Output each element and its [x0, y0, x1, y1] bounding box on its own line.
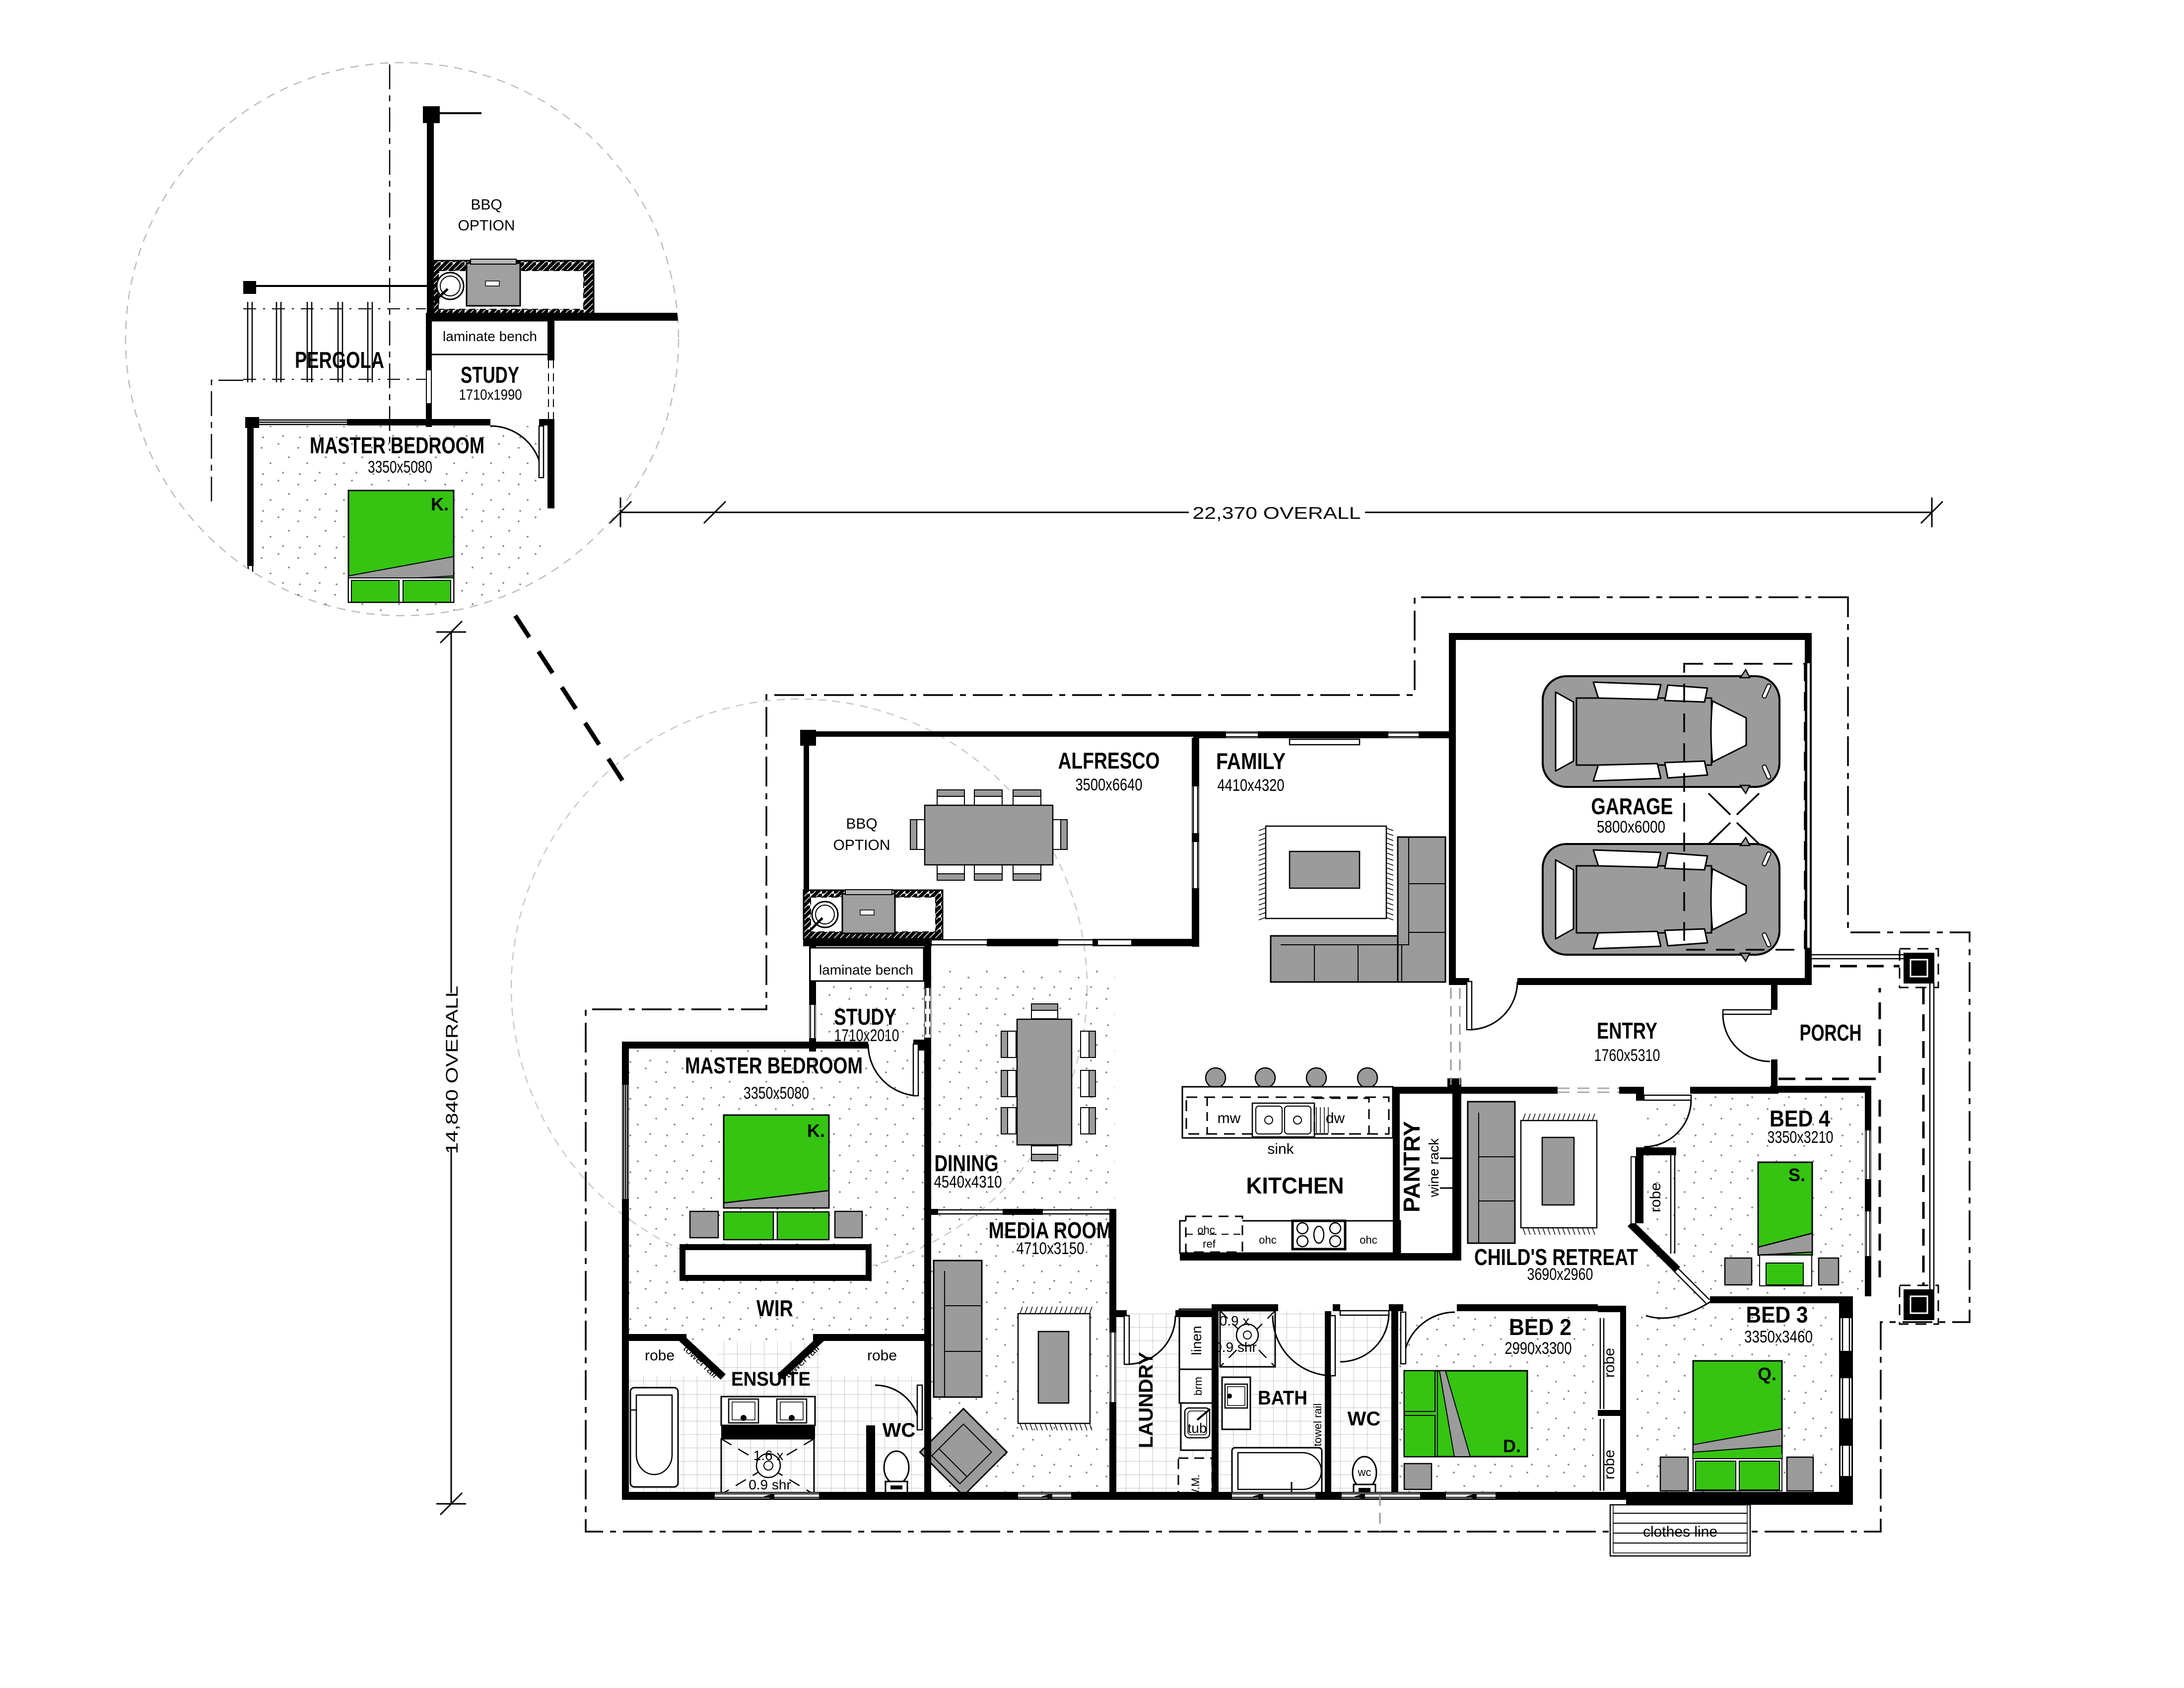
- svg-text:D.: D.: [1503, 1436, 1521, 1456]
- svg-text:K.: K.: [431, 494, 449, 514]
- svg-text:robe: robe: [1601, 1348, 1618, 1378]
- svg-text:ENTRY: ENTRY: [1597, 1018, 1657, 1044]
- svg-text:brm: brm: [1192, 1377, 1204, 1396]
- svg-text:0.9 shr: 0.9 shr: [1214, 1339, 1257, 1355]
- svg-text:wine rack: wine rack: [1426, 1138, 1441, 1197]
- svg-text:robe: robe: [645, 1347, 675, 1364]
- svg-text:FAMILY: FAMILY: [1216, 748, 1286, 774]
- svg-text:2990x3300: 2990x3300: [1505, 1339, 1572, 1358]
- svg-text:BED 2: BED 2: [1509, 1314, 1571, 1340]
- svg-text:robe: robe: [1647, 1183, 1664, 1212]
- svg-text:ohc: ohc: [1259, 1234, 1276, 1246]
- svg-text:wc: wc: [1358, 1466, 1371, 1478]
- svg-text:PORCH: PORCH: [1800, 1020, 1862, 1046]
- svg-text:14,840 OVERALL: 14,840 OVERALL: [443, 986, 462, 1154]
- svg-text:K.: K.: [807, 1121, 825, 1141]
- svg-text:OPTION: OPTION: [833, 837, 890, 853]
- svg-text:4410x4320: 4410x4320: [1218, 776, 1285, 795]
- svg-text:LAUNDRY: LAUNDRY: [1135, 1352, 1157, 1448]
- svg-text:PANTRY: PANTRY: [1399, 1121, 1425, 1212]
- svg-text:0.9 shr: 0.9 shr: [749, 1477, 791, 1492]
- svg-text:1.6 x: 1.6 x: [753, 1448, 784, 1463]
- svg-text:3350x5080: 3350x5080: [368, 458, 432, 477]
- svg-text:BED 3: BED 3: [1746, 1302, 1808, 1328]
- svg-text:BBQ: BBQ: [471, 197, 502, 213]
- svg-text:BATH: BATH: [1258, 1387, 1307, 1409]
- svg-text:4710x3150: 4710x3150: [1017, 1239, 1085, 1258]
- svg-text:OPTION: OPTION: [458, 217, 515, 234]
- svg-text:5800x6000: 5800x6000: [1597, 818, 1665, 837]
- svg-text:1710x2010: 1710x2010: [834, 1026, 899, 1045]
- svg-text:WC: WC: [1348, 1408, 1381, 1430]
- svg-text:22,370 OVERALL: 22,370 OVERALL: [1193, 504, 1361, 523]
- svg-text:ref: ref: [1203, 1238, 1216, 1250]
- svg-text:WIR: WIR: [756, 1295, 793, 1321]
- svg-text:1710x1990: 1710x1990: [459, 387, 522, 403]
- svg-text:3350x3460: 3350x3460: [1744, 1328, 1813, 1346]
- svg-text:towel rail: towel rail: [1311, 1404, 1324, 1447]
- svg-text:dw: dw: [1326, 1110, 1345, 1126]
- svg-text:clothes line: clothes line: [1643, 1524, 1717, 1540]
- svg-text:4540x4310: 4540x4310: [934, 1173, 1002, 1192]
- svg-text:ohc: ohc: [1197, 1224, 1215, 1236]
- svg-text:3500x6640: 3500x6640: [1076, 775, 1143, 794]
- svg-text:1760x5310: 1760x5310: [1594, 1046, 1660, 1065]
- svg-text:laminate bench: laminate bench: [443, 329, 537, 344]
- svg-text:robe: robe: [1601, 1450, 1618, 1479]
- svg-text:WC: WC: [883, 1419, 916, 1441]
- svg-text:0.9 x: 0.9 x: [1220, 1313, 1250, 1329]
- svg-text:robe: robe: [867, 1347, 897, 1364]
- svg-text:sink: sink: [1267, 1141, 1294, 1157]
- svg-text:ALFRESCO: ALFRESCO: [1058, 748, 1160, 774]
- svg-text:3350x5080: 3350x5080: [744, 1084, 809, 1103]
- svg-text:laminate bench: laminate bench: [819, 962, 913, 978]
- svg-text:S.: S.: [1788, 1165, 1805, 1185]
- svg-text:MASTER BEDROOM: MASTER BEDROOM: [685, 1053, 863, 1078]
- svg-text:Q.: Q.: [1758, 1364, 1776, 1384]
- svg-text:GARAGE: GARAGE: [1591, 793, 1673, 819]
- svg-text:BBQ: BBQ: [846, 816, 877, 832]
- svg-text:3350x3210: 3350x3210: [1768, 1128, 1834, 1147]
- svg-text:MASTER BEDROOM: MASTER BEDROOM: [310, 432, 484, 458]
- svg-text:linen: linen: [1189, 1326, 1204, 1355]
- svg-text:STUDY: STUDY: [461, 362, 519, 388]
- svg-text:PERGOLA: PERGOLA: [295, 347, 384, 373]
- svg-text:ohc: ohc: [1360, 1234, 1377, 1246]
- svg-text:W.M.: W.M.: [1189, 1475, 1202, 1499]
- svg-text:3690x2960: 3690x2960: [1527, 1265, 1593, 1284]
- svg-text:mw: mw: [1218, 1110, 1241, 1126]
- svg-text:tub: tub: [1188, 1420, 1207, 1436]
- svg-text:KITCHEN: KITCHEN: [1246, 1173, 1344, 1198]
